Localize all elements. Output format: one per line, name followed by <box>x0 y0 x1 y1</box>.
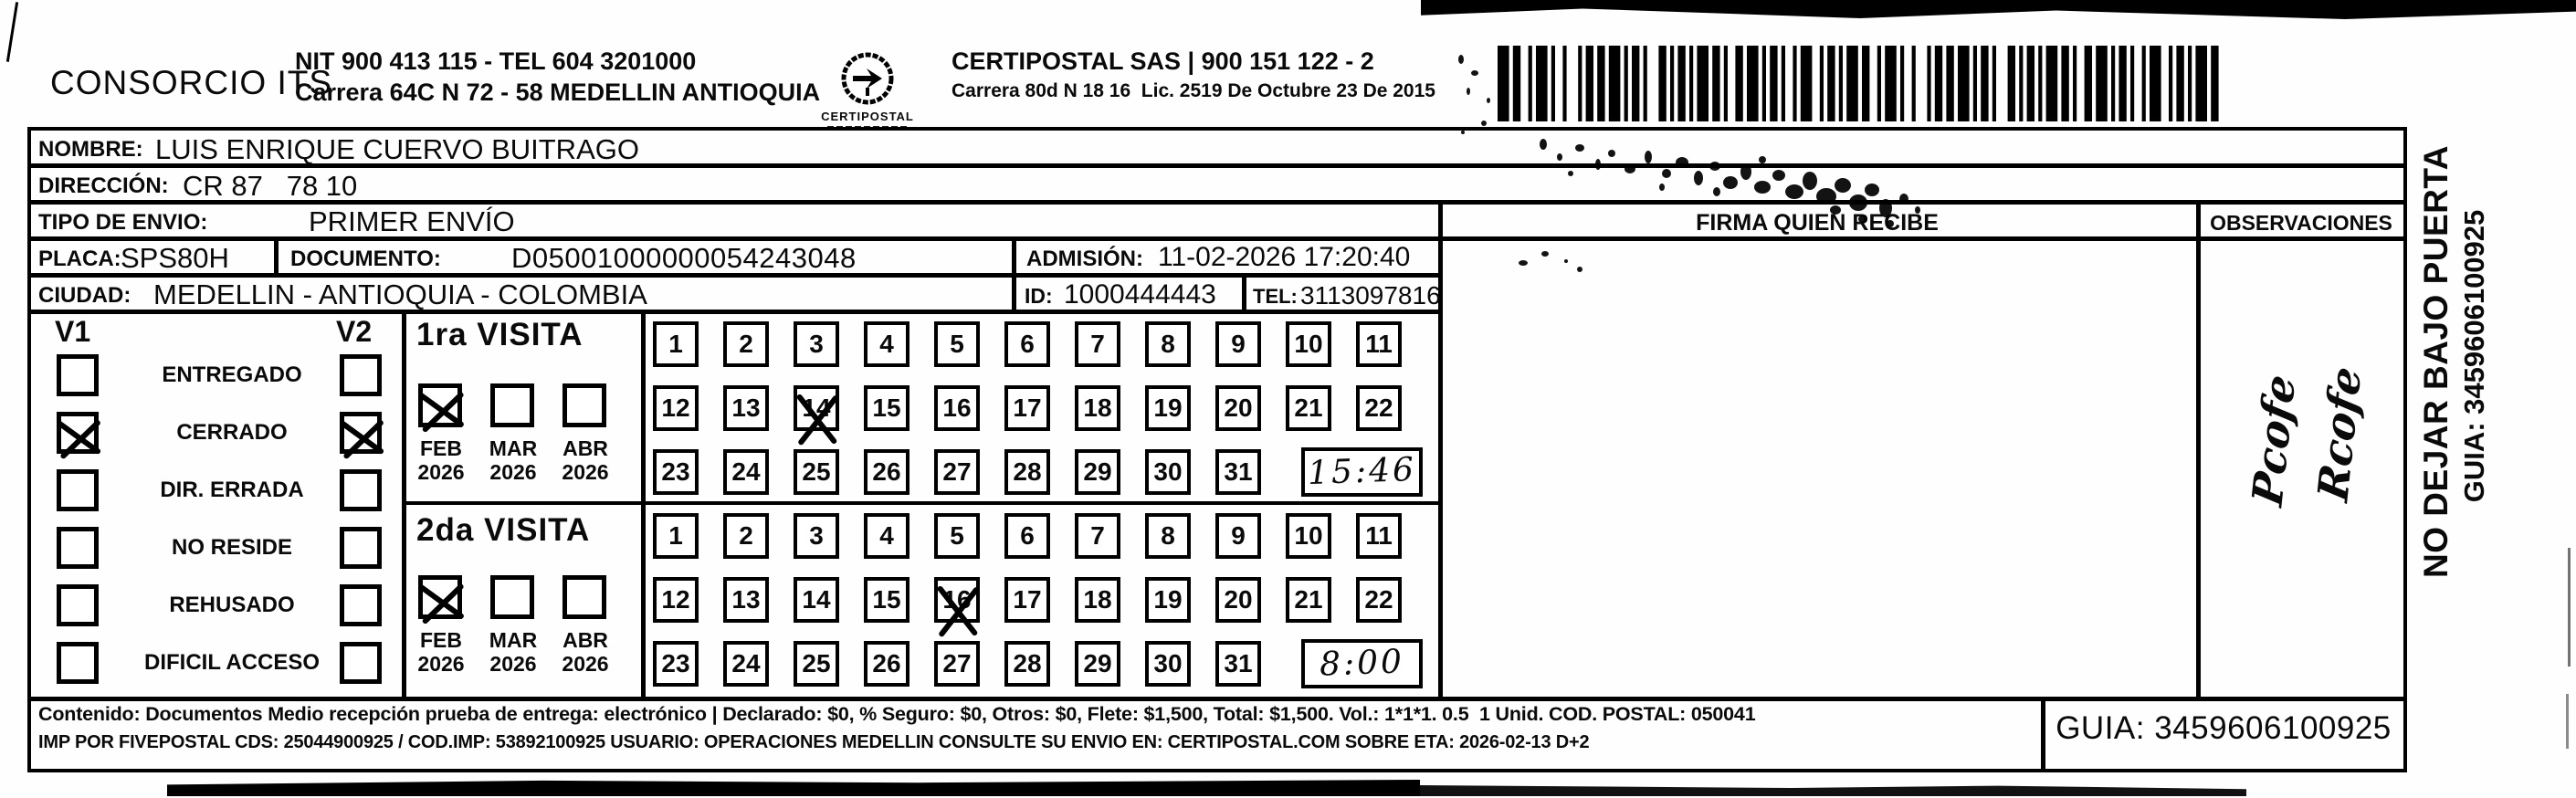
day-cell-31: 31 <box>1215 641 1261 687</box>
day-cell-4: 4 <box>864 321 909 367</box>
day-cell-12: 12 <box>653 577 699 623</box>
scanned-delivery-form: CONSORCIO ITS NIT 900 413 115 - TEL 604 … <box>0 0 2576 798</box>
checkbox-v1-4 <box>57 584 99 626</box>
status-label: DIFICIL ACCESO <box>128 649 336 677</box>
month-label: FEB <box>411 629 471 651</box>
day-cell-6: 6 <box>1004 513 1050 559</box>
handwritten-x-mark <box>338 410 385 459</box>
handwritten-time-box: 15:46 <box>1301 447 1423 497</box>
visit-section-1: 1ra VISITAFEB2026MAR2026ABR2026123456789… <box>402 311 1438 501</box>
placa-value: SPS80H <box>121 242 229 275</box>
tel-label: TEL: <box>1253 285 1298 309</box>
day-cell-20: 20 <box>1215 577 1261 623</box>
day-cell-21: 21 <box>1286 577 1331 623</box>
tel-value: 3113097816 <box>1300 281 1441 310</box>
month-label: MAR <box>483 437 543 459</box>
admision-value: 11-02-2026 17:20:40 <box>1158 242 1410 273</box>
day-cell-15: 15 <box>864 577 909 623</box>
handwritten-x-mark <box>416 573 466 625</box>
day-cell-4: 4 <box>864 513 909 559</box>
checkbox-v1-2 <box>57 469 99 511</box>
day-cell-16: 16 <box>934 385 980 431</box>
day-cell-31: 31 <box>1215 449 1261 495</box>
scan-artifact-top-strip <box>1421 0 2576 19</box>
status-label: CERRADO <box>128 419 336 446</box>
day-cell-26: 26 <box>864 641 909 687</box>
id-value: 1000444443 <box>1064 279 1216 310</box>
day-cell-9: 9 <box>1215 513 1261 559</box>
status-panel: V1 V2 ENTREGADOCERRADODIR. ERRADANO RESI… <box>27 311 402 698</box>
day-cell-22: 22 <box>1356 577 1402 623</box>
tipo-envio-label: TIPO DE ENVIO: <box>38 210 207 236</box>
admision-label: ADMISIÓN: <box>1026 247 1143 272</box>
ciudad-value: MEDELLIN - ANTIOQUIA - COLOMBIA <box>153 278 647 311</box>
col-divider <box>1242 273 1246 314</box>
visit-title: 1ra VISITA <box>416 317 583 353</box>
day-cell-8: 8 <box>1145 513 1191 559</box>
day-cell-10: 10 <box>1286 513 1331 559</box>
id-label: ID: <box>1025 284 1053 309</box>
day-cell-6: 6 <box>1004 321 1050 367</box>
visit-section-2: 2da VISITAFEB2026MAR2026ABR2026123456789… <box>402 503 1438 698</box>
day-cell-11: 11 <box>1356 513 1402 559</box>
direccion-label: DIRECCIÓN: <box>38 173 169 199</box>
col-divider <box>1438 200 1443 701</box>
day-cell-18: 18 <box>1075 577 1120 623</box>
ciudad-label: CIUDAD: <box>38 283 131 309</box>
scan-artifact-left-line <box>6 2 18 62</box>
footer-content-line1: Contenido: Documentos Medio recepción pr… <box>38 703 1755 726</box>
checkbox-v1-0 <box>57 354 99 396</box>
day-cell-13: 13 <box>723 577 769 623</box>
col-divider <box>1012 236 1016 314</box>
day-cell-2: 2 <box>723 513 769 559</box>
month-label: ABR <box>555 437 615 459</box>
month-label: ABR <box>555 629 615 651</box>
day-cell-1: 1 <box>653 321 699 367</box>
day-cell-17: 17 <box>1004 385 1050 431</box>
day-cell-12: 12 <box>653 385 699 431</box>
day-cell-18: 18 <box>1075 385 1120 431</box>
guia-vertical: GUIA: 3459606100925 <box>2458 183 2491 530</box>
scan-artifact-bottom-strip <box>167 780 1420 796</box>
year-label: 2026 <box>555 653 615 675</box>
checkbox-v1-3 <box>57 527 99 569</box>
documento-label: DOCUMENTO: <box>290 247 441 272</box>
provider-info-line1: CERTIPOSTAL SAS | 900 151 122 - 2 <box>952 47 1374 76</box>
status-label: ENTREGADO <box>128 362 336 389</box>
scan-artifact-right-dash-2 <box>2566 694 2569 749</box>
day-cell-28: 28 <box>1004 449 1050 495</box>
provider-info-line2: Carrera 80d N 18 16 Lic. 2519 De Octubre… <box>952 80 1435 102</box>
day-cell-17: 17 <box>1004 577 1050 623</box>
company-name: CONSORCIO ITS <box>50 64 332 102</box>
day-cell-23: 23 <box>653 641 699 687</box>
footer-content-line2: IMP POR FIVEPOSTAL CDS: 25044900925 / CO… <box>38 732 1589 753</box>
year-label: 2026 <box>483 653 543 675</box>
month-checkbox-abr <box>563 383 606 427</box>
day-cell-25: 25 <box>794 641 839 687</box>
day-cell-5: 5 <box>934 321 980 367</box>
day-cell-7: 7 <box>1075 513 1120 559</box>
day-cell-20: 20 <box>1215 385 1261 431</box>
year-label: 2026 <box>555 461 615 483</box>
day-cell-24: 24 <box>723 449 769 495</box>
checkbox-v1-5 <box>57 642 99 684</box>
day-cell-24: 24 <box>723 641 769 687</box>
documento-value: D05001000000054243048 <box>511 242 857 275</box>
logo-caption: CERTIPOSTAL <box>820 110 915 123</box>
checkbox-v2-4 <box>340 584 382 626</box>
month-label: FEB <box>411 437 471 459</box>
handwritten-time: 8:00 <box>1304 641 1420 687</box>
day-cell-5: 5 <box>934 513 980 559</box>
no-dejar-warning: NO DEJAR BAJO PUERTA <box>2417 142 2455 581</box>
day-cell-27: 27 <box>934 449 980 495</box>
day-cell-14: 14 <box>794 577 839 623</box>
scan-artifact-right-dash <box>2568 548 2571 667</box>
checkbox-v2-5 <box>340 642 382 684</box>
day-cell-23: 23 <box>653 449 699 495</box>
year-label: 2026 <box>483 461 543 483</box>
visit-title: 2da VISITA <box>416 512 590 549</box>
handwritten-x-mark <box>929 573 985 643</box>
nombre-value: LUIS ENRIQUE CUERVO BUITRAGO <box>155 133 639 166</box>
month-checkbox-mar <box>490 383 534 427</box>
day-cell-25: 25 <box>794 449 839 495</box>
col-divider <box>2196 200 2201 701</box>
day-cell-29: 29 <box>1075 449 1120 495</box>
v1-column-label: V1 <box>55 315 90 349</box>
year-label: 2026 <box>411 461 471 483</box>
handwritten-time: 15:46 <box>1304 449 1420 495</box>
day-cell-30: 30 <box>1145 641 1191 687</box>
company-address-line: Carrera 64C N 72 - 58 MEDELLIN ANTIOQUIA <box>295 79 820 107</box>
day-cell-28: 28 <box>1004 641 1050 687</box>
status-label: REHUSADO <box>128 592 336 619</box>
barcode <box>1498 46 2228 123</box>
handwritten-time-box: 8:00 <box>1301 639 1423 688</box>
checkbox-v2-1 <box>340 412 382 454</box>
day-cell-3: 3 <box>794 513 839 559</box>
day-cell-3: 3 <box>794 321 839 367</box>
day-cell-30: 30 <box>1145 449 1191 495</box>
handwritten-x-mark <box>416 382 466 433</box>
status-label: DIR. ERRADA <box>128 477 336 504</box>
day-cell-19: 19 <box>1145 385 1191 431</box>
guia-number: GUIA: 3459606100925 <box>2041 710 2406 747</box>
year-label: 2026 <box>411 653 471 675</box>
month-checkbox-mar <box>490 575 534 619</box>
day-cell-11: 11 <box>1356 321 1402 367</box>
day-cell-19: 19 <box>1145 577 1191 623</box>
month-checkbox-feb <box>418 383 462 427</box>
month-checkbox-abr <box>563 575 606 619</box>
day-cell-7: 7 <box>1075 321 1120 367</box>
tipo-envio-value: PRIMER ENVÍO <box>309 205 515 238</box>
day-cell-16: 16 <box>934 577 980 623</box>
day-cell-10: 10 <box>1286 321 1331 367</box>
certipostal-logo-icon <box>833 51 902 108</box>
day-cell-15: 15 <box>864 385 909 431</box>
checkbox-v1-1 <box>57 412 99 454</box>
v2-column-label: V2 <box>336 315 372 349</box>
day-cell-8: 8 <box>1145 321 1191 367</box>
day-cell-9: 9 <box>1215 321 1261 367</box>
firma-header: FIRMA QUIEN RECIBE <box>1438 210 2196 236</box>
status-label: NO RESIDE <box>128 534 336 562</box>
row-divider <box>27 200 2407 205</box>
checkbox-v2-3 <box>340 527 382 569</box>
checkbox-v2-2 <box>340 469 382 511</box>
month-checkbox-feb <box>418 575 462 619</box>
day-cell-1: 1 <box>653 513 699 559</box>
day-cell-26: 26 <box>864 449 909 495</box>
month-label: MAR <box>483 629 543 651</box>
direccion-value: CR 87 78 10 <box>183 170 357 203</box>
day-cell-2: 2 <box>723 321 769 367</box>
day-cell-13: 13 <box>723 385 769 431</box>
day-cell-14: 14 <box>794 385 839 431</box>
handwritten-x-mark <box>788 382 845 451</box>
observaciones-header: OBSERVACIONES <box>2196 211 2406 236</box>
company-nit-line: NIT 900 413 115 - TEL 604 3201000 <box>295 47 696 76</box>
day-cell-29: 29 <box>1075 641 1120 687</box>
day-cell-21: 21 <box>1286 385 1331 431</box>
placa-label: PLACA: <box>38 247 121 272</box>
checkbox-v2-0 <box>340 354 382 396</box>
handwritten-x-mark <box>55 410 102 459</box>
day-cell-22: 22 <box>1356 385 1402 431</box>
day-cell-27: 27 <box>934 641 980 687</box>
nombre-label: NOMBRE: <box>38 137 143 163</box>
col-divider <box>274 236 279 278</box>
scan-artifact-bottom-strip-2 <box>1420 785 2246 796</box>
